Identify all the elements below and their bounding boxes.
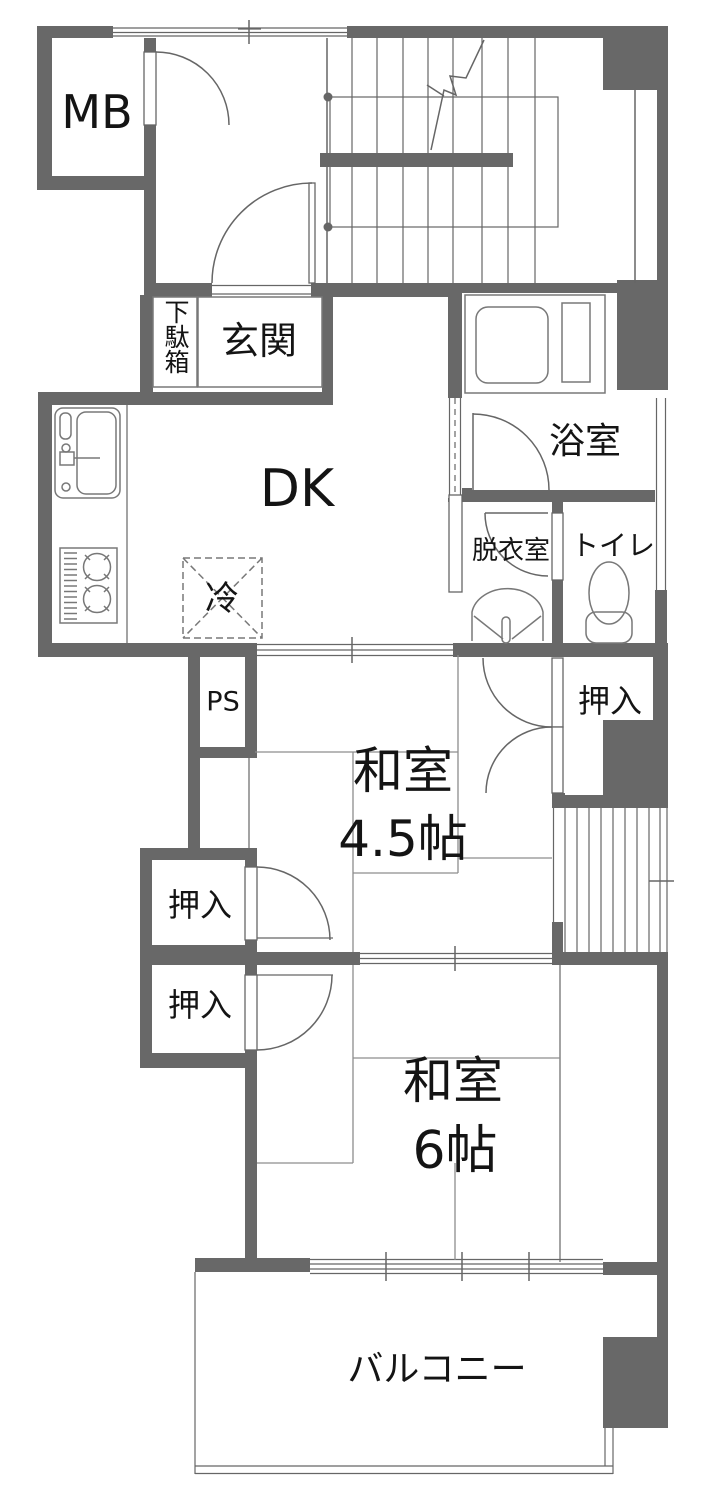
bathtub-icon xyxy=(465,295,605,393)
staircase xyxy=(320,38,635,283)
room-label-ps: PS xyxy=(206,689,239,716)
room-label-washitsu6-size: 6帖 xyxy=(412,1125,497,1177)
room-label-genkan: 玄関 xyxy=(221,322,297,360)
room-label-washitsu6-name: 和室 xyxy=(403,1056,503,1106)
room-label-fridge: 冷 xyxy=(205,582,239,616)
stove-icon xyxy=(60,548,117,623)
room-label-closet-right: 押入 xyxy=(578,685,642,717)
room-label-getabako: 下駄箱 xyxy=(161,299,189,374)
kitchen-sink-icon xyxy=(55,408,120,498)
room-label-balcony: バルコニー xyxy=(347,1352,526,1388)
room-label-washitsu45-size: 4.5帖 xyxy=(338,814,468,864)
room-label-washitsu45-name: 和室 xyxy=(353,746,453,796)
room-label-dressing: 脱衣室 xyxy=(472,538,550,564)
room-label-bath: 浴室 xyxy=(549,424,621,460)
hatch-area xyxy=(554,808,675,952)
room-label-closet-lower-left: 押入 xyxy=(168,989,232,1021)
room-label-closet-upper-left: 押入 xyxy=(168,889,232,921)
washbasin-icon xyxy=(472,589,543,643)
toilet-icon xyxy=(586,562,632,643)
room-label-mb: MB xyxy=(61,89,132,135)
room-label-toilet: トイレ xyxy=(571,532,655,560)
floorplan: MB 下駄箱 玄関 DK 冷 浴室 脱衣室 トイレ PS 押入 和室 4.5帖 … xyxy=(0,0,718,1500)
room-label-dk: DK xyxy=(260,463,334,515)
